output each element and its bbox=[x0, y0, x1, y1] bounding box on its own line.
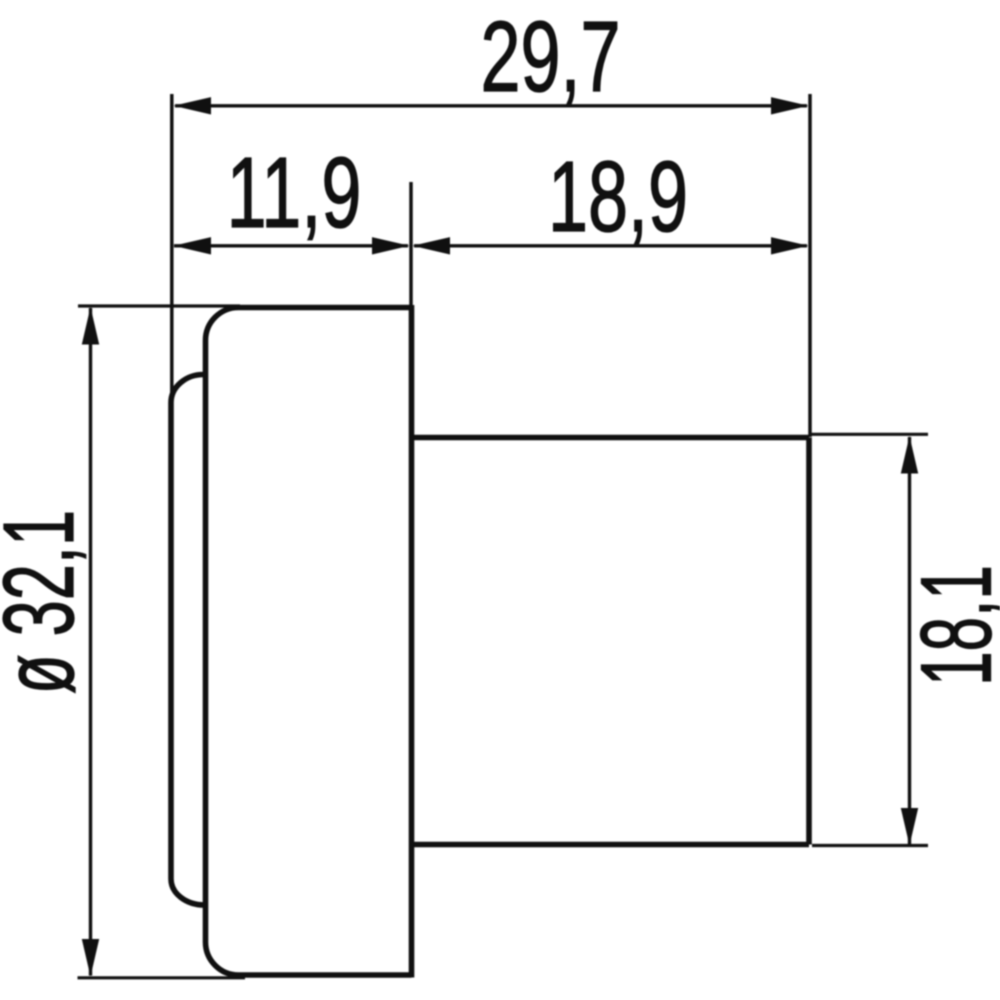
svg-text:11,9: 11,9 bbox=[227, 137, 362, 248]
svg-text:18,9: 18,9 bbox=[548, 141, 688, 252]
svg-text:18,1: 18,1 bbox=[900, 565, 1000, 686]
svg-text:29,7: 29,7 bbox=[480, 1, 620, 112]
svg-text:ø 32,1: ø 32,1 bbox=[0, 510, 94, 694]
